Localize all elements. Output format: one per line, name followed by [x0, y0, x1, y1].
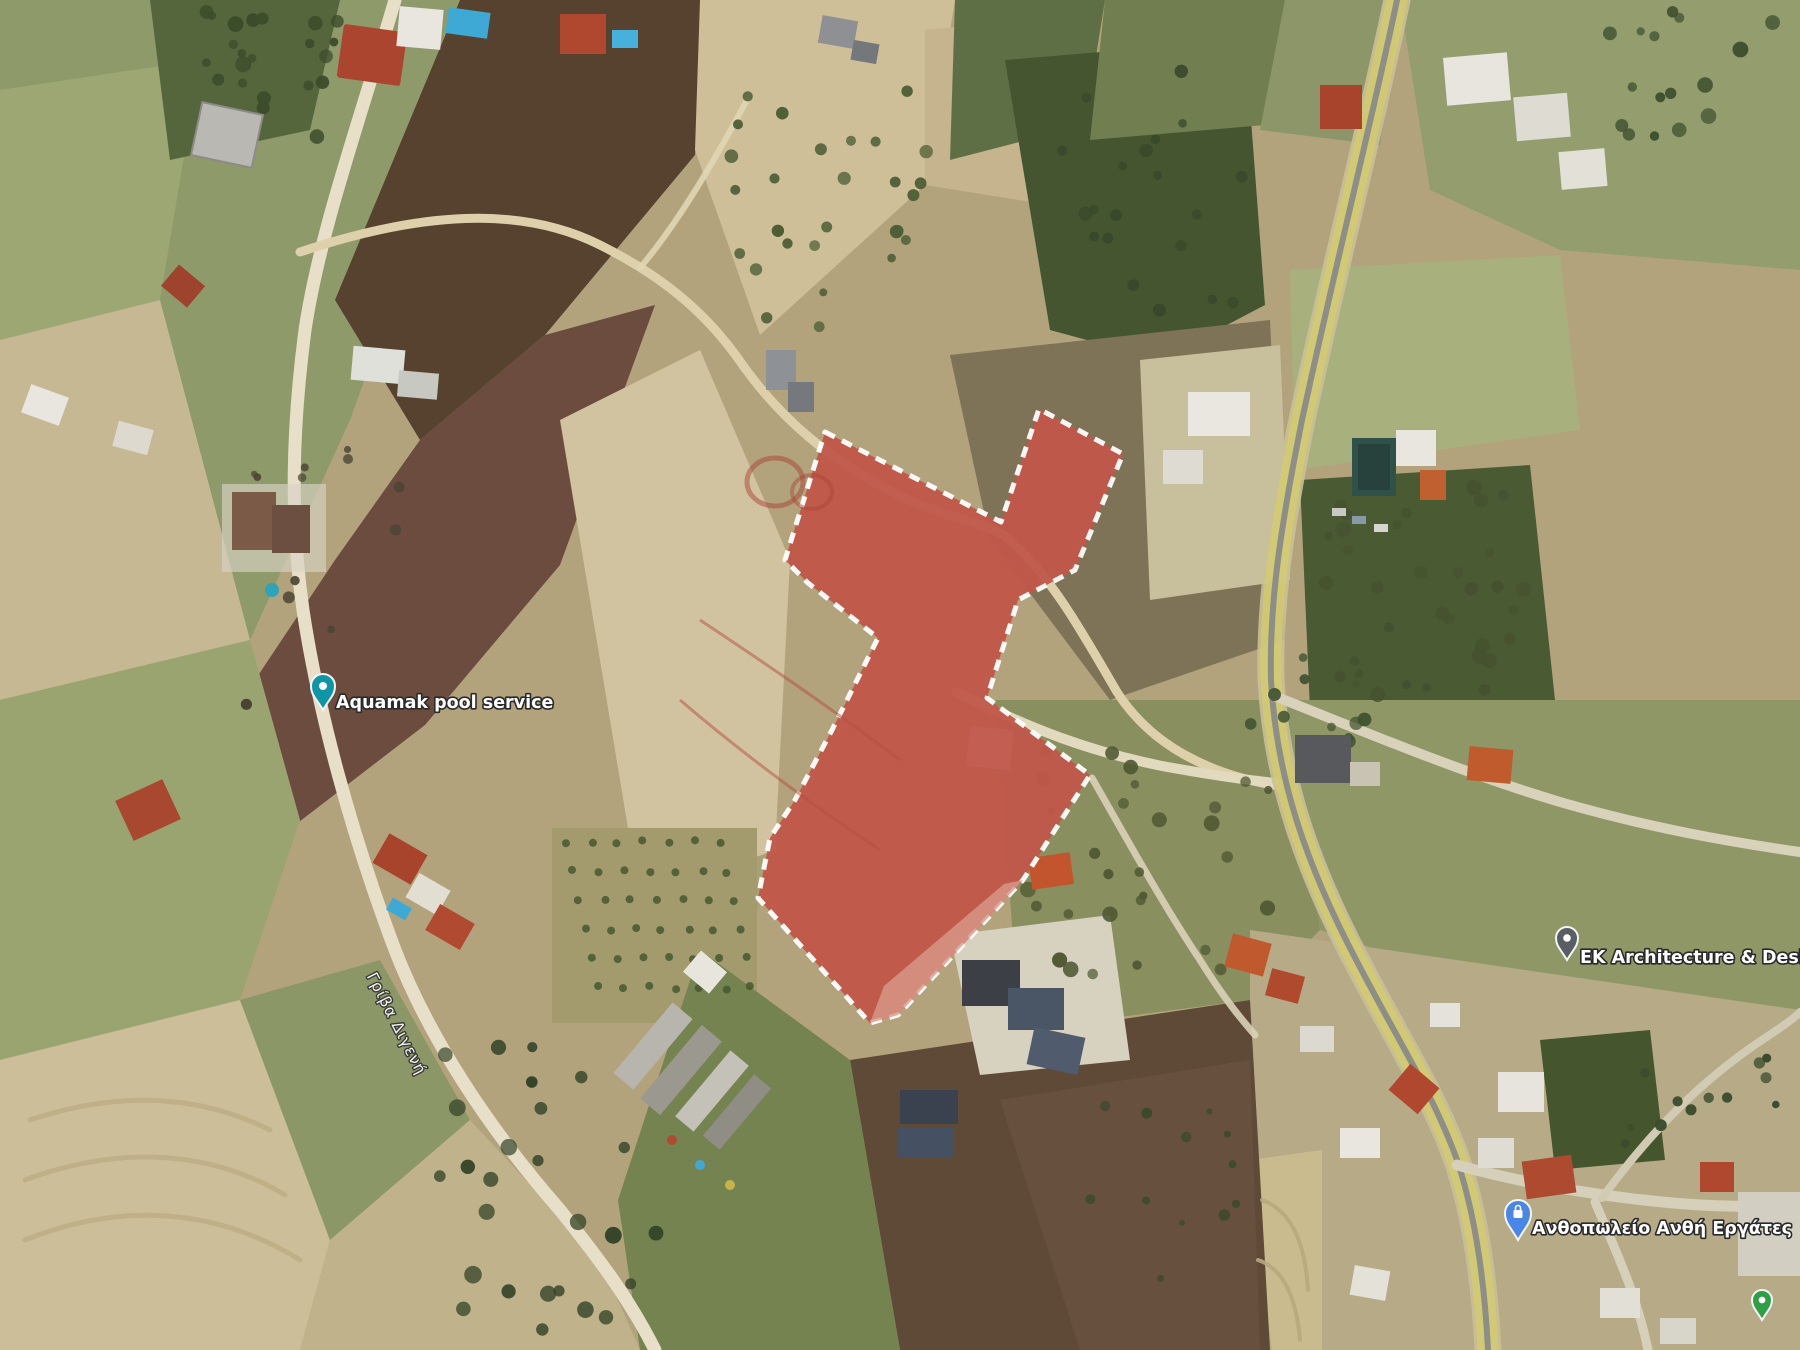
ek-pin-dot: [1563, 934, 1571, 942]
satellite-map[interactable]: Aquamak pool service EK Architecture & D…: [0, 0, 1800, 1350]
label-ek-architecture[interactable]: EK Architecture & Design: [1580, 948, 1800, 968]
satellite-map-canvas[interactable]: Aquamak pool service EK Architecture & D…: [0, 0, 1800, 1350]
label-flower-shop[interactable]: Ανθοπωλείο Ανθή Εργάτες: [1532, 1219, 1792, 1239]
aquamak-pin-dot: [319, 682, 327, 690]
green-pin-dot: [1759, 1297, 1766, 1304]
label-aquamak[interactable]: Aquamak pool service: [336, 693, 553, 713]
shopping-bag-icon: [1514, 1210, 1523, 1218]
